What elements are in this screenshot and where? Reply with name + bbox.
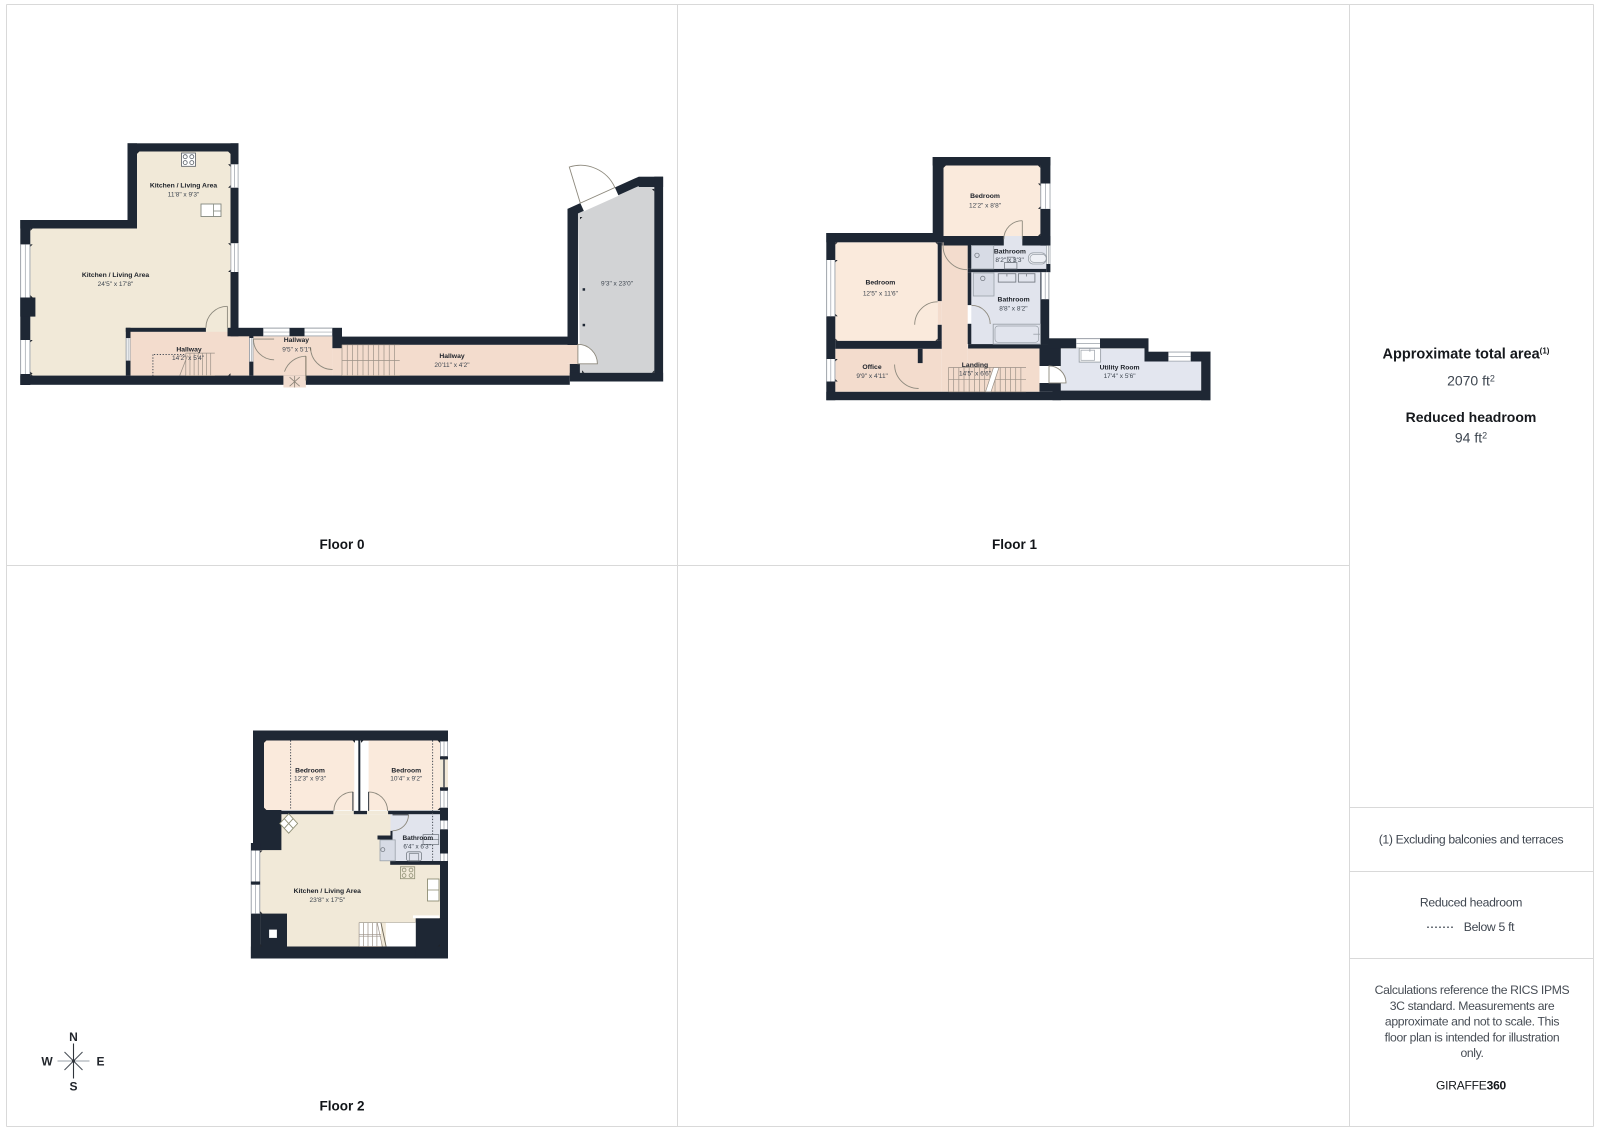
svg-text:8'2" x 3'3": 8'2" x 3'3" <box>995 257 1024 264</box>
svg-text:14'2" x 5'4": 14'2" x 5'4" <box>172 355 205 362</box>
svg-text:Bathroom: Bathroom <box>994 249 1026 256</box>
svg-text:17'4" x 5'6": 17'4" x 5'6" <box>1104 373 1137 380</box>
svg-text:9'5" x 5'1": 9'5" x 5'1" <box>282 347 311 354</box>
svg-text:GIRAFFE360: GIRAFFE360 <box>1436 1078 1507 1092</box>
svg-text:Reduced headroom: Reduced headroom <box>1406 409 1537 425</box>
svg-text:Hallway: Hallway <box>284 337 310 344</box>
svg-text:Kitchen / Living Area: Kitchen / Living Area <box>150 183 218 190</box>
svg-text:11'8" x 9'3": 11'8" x 9'3" <box>168 192 200 199</box>
svg-text:Kitchen / Living Area: Kitchen / Living Area <box>294 888 362 895</box>
svg-text:approximate and not to scale.: approximate and not to scale. This <box>1385 1015 1559 1029</box>
svg-text:14'5" x 6'6": 14'5" x 6'6" <box>959 371 992 378</box>
svg-text:only.: only. <box>1460 1046 1483 1060</box>
svg-text:(1) Excluding balconies and te: (1) Excluding balconies and terraces <box>1379 833 1564 847</box>
svg-text:Landing: Landing <box>962 362 988 369</box>
svg-text:Floor 2: Floor 2 <box>319 1099 364 1114</box>
svg-text:9'9" x 4'11": 9'9" x 4'11" <box>856 373 888 380</box>
svg-text:Floor 0: Floor 0 <box>319 537 364 552</box>
svg-text:94 ft2: 94 ft2 <box>1455 430 1487 446</box>
svg-text:Reduced headroom: Reduced headroom <box>1420 896 1522 910</box>
svg-text:N: N <box>69 1030 78 1044</box>
svg-text:Hallway: Hallway <box>176 347 202 354</box>
svg-text:Bathroom: Bathroom <box>402 835 433 842</box>
svg-text:Floor 1: Floor 1 <box>992 537 1037 552</box>
svg-text:9'3" x 23'0": 9'3" x 23'0" <box>601 281 634 288</box>
svg-text:23'8" x 17'5": 23'8" x 17'5" <box>309 897 345 904</box>
svg-text:3C standard. Measurements are: 3C standard. Measurements are <box>1390 999 1555 1013</box>
svg-text:Bedroom: Bedroom <box>295 767 325 774</box>
svg-text:Bathroom: Bathroom <box>998 297 1030 304</box>
svg-text:Approximate total area(1): Approximate total area(1) <box>1383 347 1550 363</box>
svg-text:floor plan is intended for ill: floor plan is intended for illustration <box>1385 1030 1560 1044</box>
svg-text:24'5" x 17'8": 24'5" x 17'8" <box>98 281 134 288</box>
svg-text:6'4" x 6'3": 6'4" x 6'3" <box>403 844 431 851</box>
svg-text:12'5" x 11'6": 12'5" x 11'6" <box>863 291 899 298</box>
svg-text:Bedroom: Bedroom <box>970 193 1000 200</box>
svg-text:Below 5 ft: Below 5 ft <box>1464 920 1515 934</box>
svg-text:8'8" x 8'2": 8'8" x 8'2" <box>999 306 1028 313</box>
svg-text:12'3" x 9'3": 12'3" x 9'3" <box>294 776 327 783</box>
svg-text:Bedroom: Bedroom <box>865 280 895 287</box>
svg-text:2070 ft2: 2070 ft2 <box>1447 372 1495 388</box>
svg-text:10'4" x 9'2": 10'4" x 9'2" <box>390 776 423 783</box>
svg-text:Utility Room: Utility Room <box>1100 364 1140 371</box>
svg-text:E: E <box>96 1055 104 1069</box>
svg-text:Calculations reference the RIC: Calculations reference the RICS IPMS <box>1375 983 1570 997</box>
svg-text:20'11" x 4'2": 20'11" x 4'2" <box>434 362 470 369</box>
svg-text:Office: Office <box>862 364 881 371</box>
svg-text:12'2" x 8'8": 12'2" x 8'8" <box>969 203 1002 210</box>
svg-text:S: S <box>69 1080 77 1094</box>
svg-text:Kitchen / Living Area: Kitchen / Living Area <box>82 272 150 279</box>
svg-text:Hallway: Hallway <box>439 353 465 360</box>
svg-text:Bedroom: Bedroom <box>391 767 421 774</box>
svg-text:W: W <box>41 1055 53 1069</box>
